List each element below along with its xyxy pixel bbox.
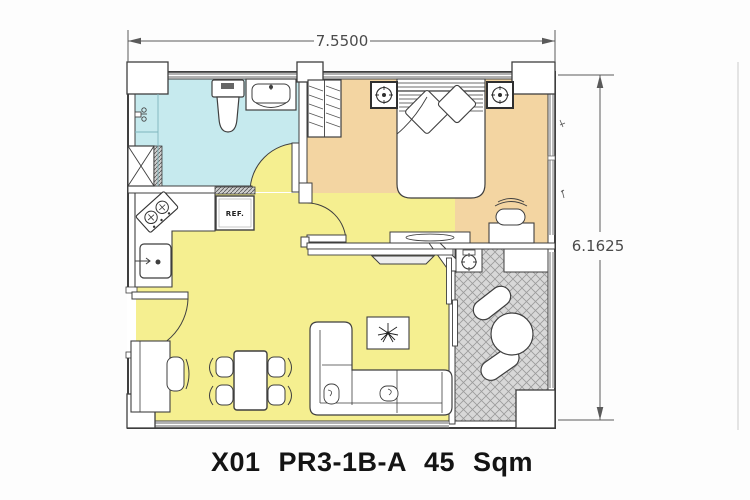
dim-arrow: [597, 75, 604, 88]
tv-cabinet-bedroom: [390, 232, 470, 243]
width-dimension-label: 7.5500: [316, 32, 369, 50]
service-shaft: [128, 146, 162, 186]
column: [512, 62, 555, 94]
dining-chair: [216, 357, 233, 377]
bedroom-door-leaf: [307, 235, 346, 242]
kitchen-sink-icon: [135, 244, 171, 278]
bathroom-sink-icon: [246, 79, 296, 110]
balcony-table: [491, 313, 533, 355]
refrigerator-label: REF.: [226, 210, 245, 218]
dining-table: [234, 351, 267, 410]
door-jamb: [299, 183, 312, 203]
column: [297, 62, 323, 82]
headboard: [397, 79, 485, 91]
height-dimension: 6.1625: [558, 75, 624, 420]
window-tag-mark: [561, 190, 564, 198]
tap-fixture-icon: [456, 249, 482, 272]
dining-chair: [268, 385, 285, 405]
balcony-bench: [504, 249, 548, 272]
dining-chair: [268, 357, 285, 377]
dim-arrow: [128, 38, 141, 45]
entrance-door-leaf: [132, 292, 188, 299]
refrigerator: REF.: [216, 196, 254, 230]
counter-ledge: [215, 187, 255, 194]
width-dimension: 7.5500: [128, 30, 555, 62]
dining-chair: [216, 385, 233, 405]
height-dimension-label: 6.1625: [572, 237, 625, 255]
plan-title: X01 PR3-1B-A 45 Sqm: [211, 447, 533, 477]
nightstand-lamp: [371, 82, 397, 108]
bathroom-door-leaf: [292, 143, 299, 192]
bedroom-west-wall: [299, 72, 307, 187]
column: [516, 390, 555, 428]
floorplan-drawing: REF.: [0, 0, 750, 500]
tv-icon: [372, 256, 434, 264]
dim-arrow: [597, 407, 604, 420]
floorplan-screenshot: REF.: [0, 0, 750, 500]
bed: [397, 79, 485, 198]
nightstand-lamp: [487, 82, 513, 108]
unit-plan: REF.: [126, 62, 565, 428]
wardrobe: [308, 80, 341, 137]
stool-icon: [496, 209, 525, 225]
desk-chair-icon: [167, 357, 184, 391]
window-tag-mark: [560, 120, 565, 127]
coffee-table: [367, 317, 409, 349]
dim-arrow: [542, 38, 555, 45]
column: [127, 62, 168, 94]
